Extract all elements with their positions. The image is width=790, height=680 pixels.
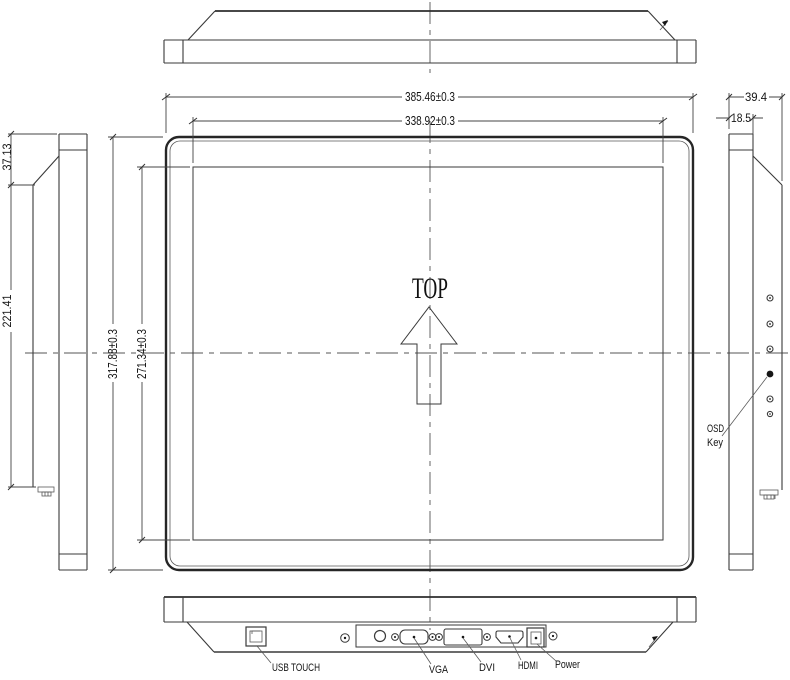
dim-panel-height: 271.34±0.3 — [135, 164, 190, 543]
monitor-dimension-drawing: TOP 385.46±0.3 338.92±0.3 317.88±0.3 271… — [0, 0, 790, 680]
osd-button-dot — [769, 323, 771, 325]
vga-label: VGA — [429, 664, 449, 676]
io-panel-plate — [356, 625, 546, 647]
right-view-front-column — [729, 134, 753, 570]
osd-button-dot — [769, 413, 771, 415]
top-view-slant-arrowhead — [662, 20, 668, 26]
front-view: TOP — [166, 137, 693, 570]
front-view-bezel-inner-line — [170, 141, 689, 566]
dim-front-depth-value: 18.5 — [731, 113, 751, 125]
front-view-active-area — [193, 167, 663, 540]
screw-icon-right — [549, 632, 557, 640]
usb-touch-leader-line — [257, 646, 271, 663]
dim-overall-height-value: 317.88±0.3 — [106, 329, 120, 379]
vga-leader-line — [414, 638, 431, 664]
power-label: Power — [555, 659, 580, 671]
dim-panel-width-value: 338.92±0.3 — [405, 114, 455, 128]
top-view-slants — [188, 11, 675, 40]
dim-panel-width: 338.92±0.3 — [189, 114, 667, 163]
dim-side-back-height-value: 221.41 — [2, 295, 14, 328]
dim-overall-depth-value: 39.4 — [745, 92, 768, 104]
audio-jack-icon — [375, 631, 386, 642]
dim-overall-width-value: 385.46±0.3 — [405, 90, 455, 104]
osd-key-label-line1: OSD — [707, 423, 724, 435]
right-view-foot-bracket — [760, 490, 778, 499]
vga-port-icon — [392, 630, 436, 644]
power-switch-icon — [527, 628, 544, 647]
dim-side-top-offset-value: 37.13 — [2, 144, 14, 171]
orientation-label: TOP — [412, 272, 448, 305]
dim-front-depth: 18.5 — [716, 113, 763, 150]
osd-key-button-filled-icon — [767, 371, 774, 378]
orientation-arrow-up-icon — [401, 307, 457, 404]
left-side-view: 37.13 221.41 — [2, 131, 87, 570]
dim-side-top-offset-extensions — [8, 134, 57, 185]
dvi-port-icon — [436, 629, 491, 645]
dim-side-back-height: 221.41 — [2, 185, 36, 490]
left-view-back-profile — [33, 156, 59, 487]
left-view-front-column — [59, 134, 87, 570]
osd-buttons — [767, 295, 774, 417]
usb-touch-label: USB TOUCH — [272, 662, 320, 674]
technical-drawing-page: TOP 385.46±0.3 338.92±0.3 317.88±0.3 271… — [0, 0, 790, 680]
dim-panel-height-value: 271.34±0.3 — [135, 329, 149, 379]
left-view-foot-bracket — [38, 487, 54, 496]
dim-side-top-offset: 37.13 — [2, 131, 57, 188]
dim-overall-depth-extensions — [729, 93, 782, 181]
dim-overall-depth: 39.4 — [726, 92, 785, 181]
dvi-leader-line — [463, 638, 481, 662]
osd-button-dot — [769, 297, 771, 299]
hdmi-port-icon — [496, 631, 523, 643]
osd-key-label-line2: Key — [707, 437, 723, 449]
usb-touch-port-icon — [246, 627, 266, 646]
front-view-outer-bezel — [166, 137, 693, 570]
osd-button-dot — [769, 398, 771, 400]
screw-icon-left — [341, 634, 350, 643]
dvi-label: DVI — [479, 662, 495, 674]
right-side-view: OSD Key 39.4 18.5 — [707, 92, 785, 570]
hdmi-label: HDMI — [518, 660, 538, 672]
osd-button-dot — [769, 348, 771, 350]
